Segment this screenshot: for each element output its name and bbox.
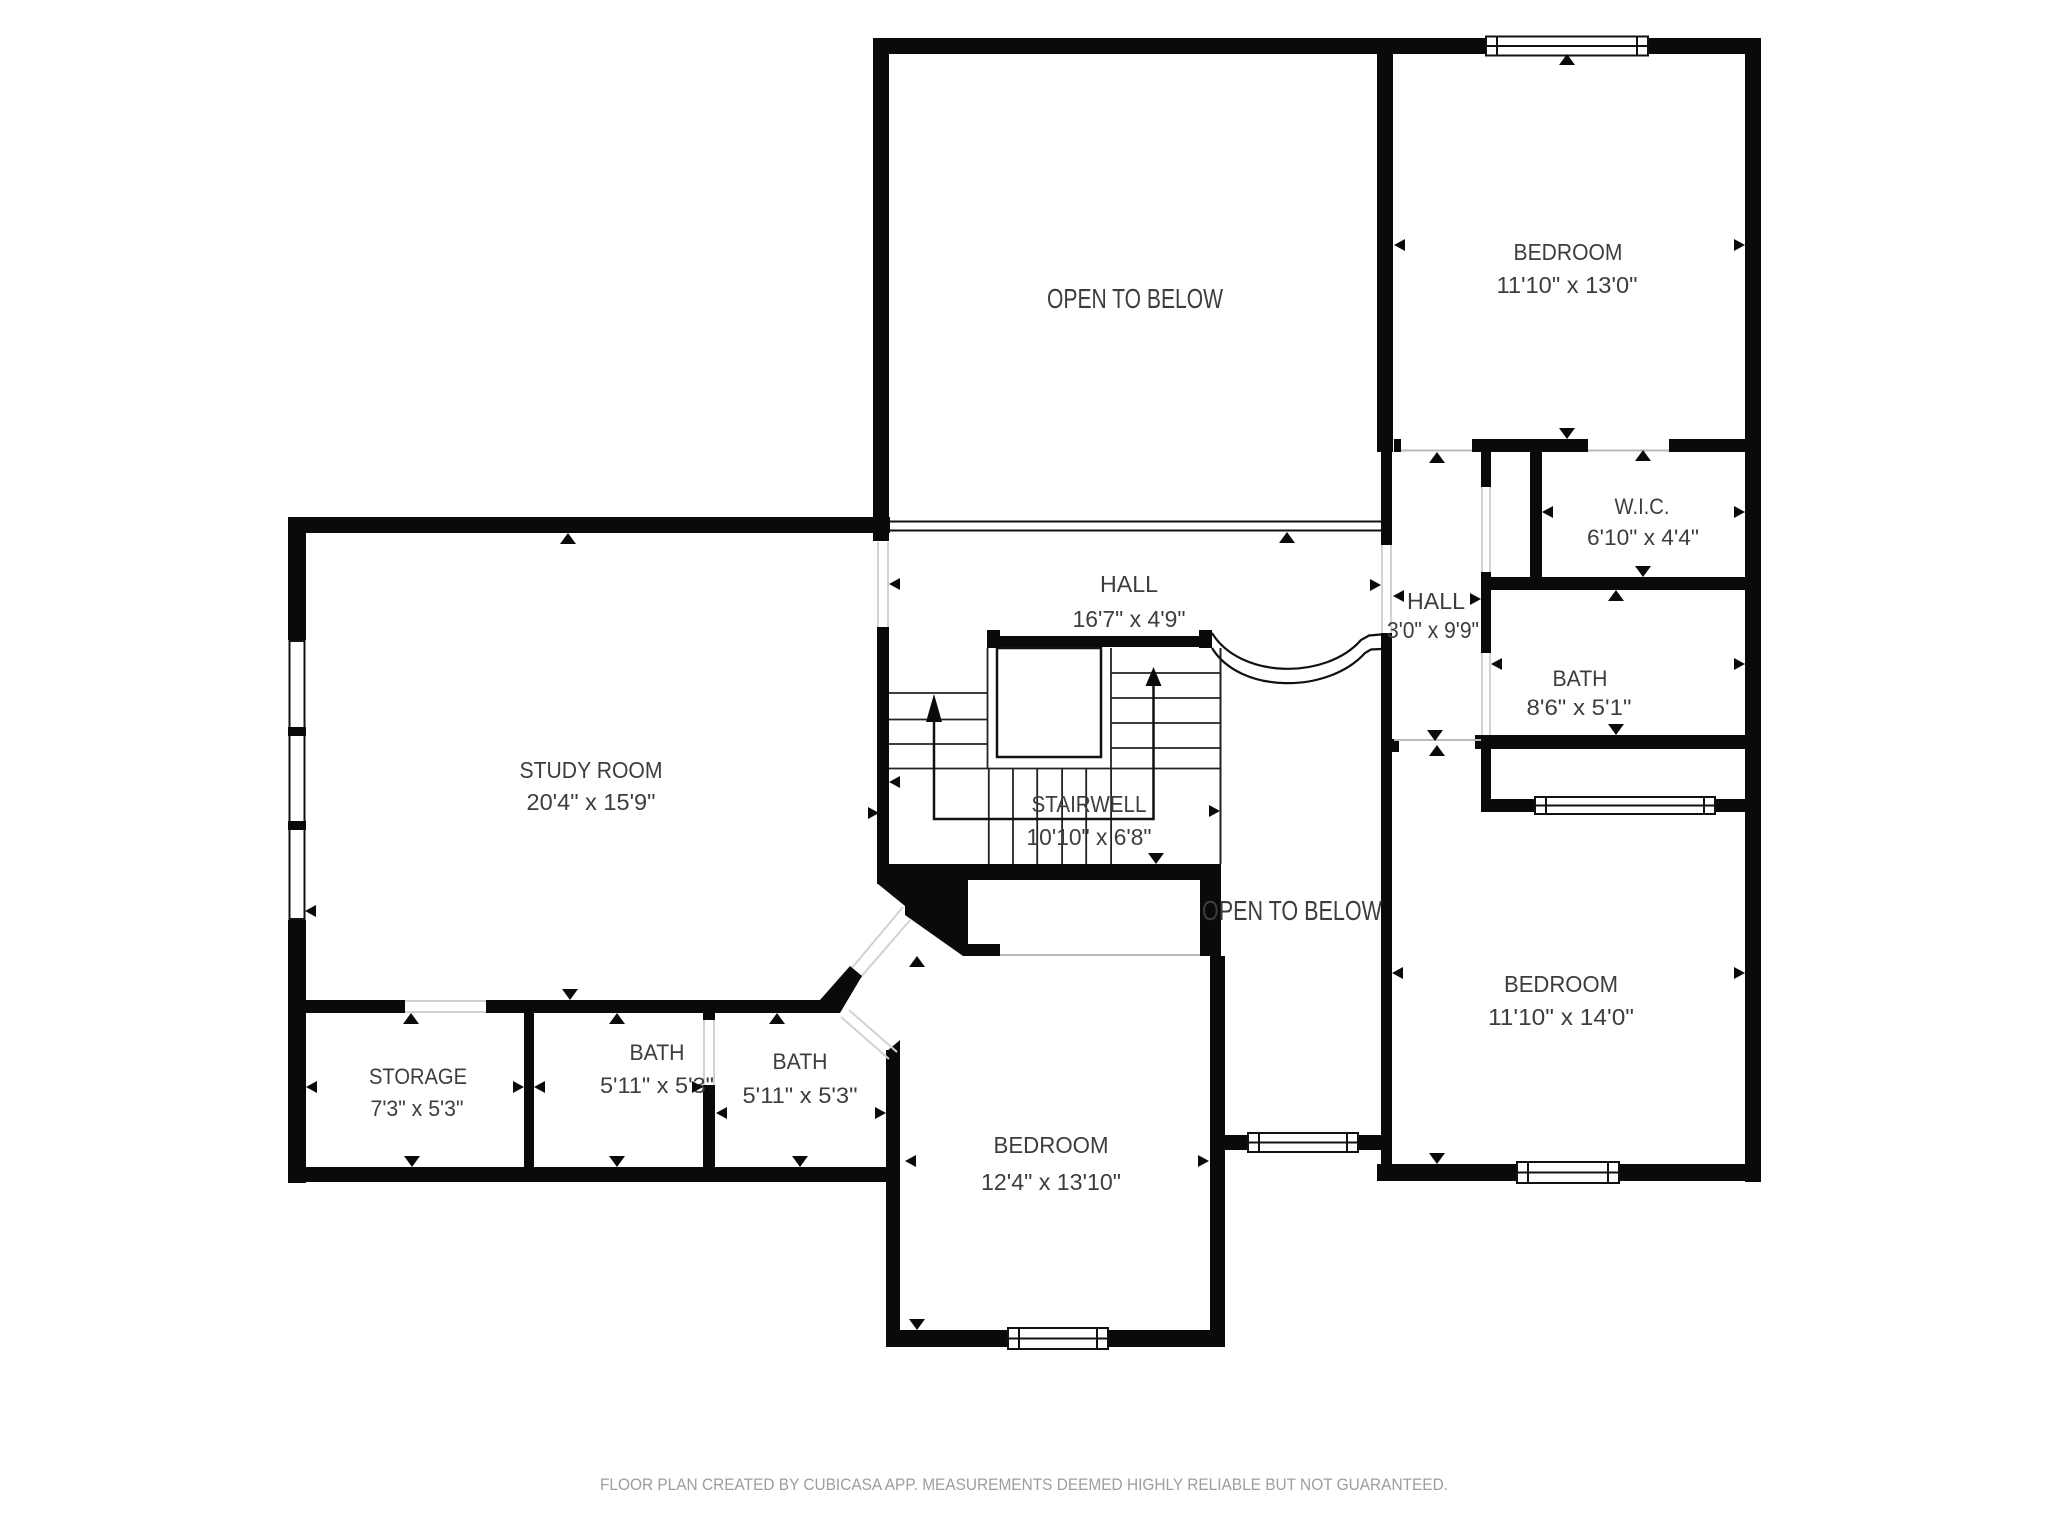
svg-text:11'10" x 13'0": 11'10" x 13'0"	[1497, 272, 1638, 298]
svg-text:BATH: BATH	[1553, 666, 1608, 691]
svg-text:12'4" x 13'10": 12'4" x 13'10"	[981, 1169, 1121, 1195]
svg-text:W.I.C.: W.I.C.	[1615, 494, 1670, 519]
svg-text:STUDY ROOM: STUDY ROOM	[520, 757, 663, 783]
svg-text:16'7" x 4'9": 16'7" x 4'9"	[1073, 606, 1186, 632]
svg-text:BATH: BATH	[630, 1040, 685, 1065]
svg-text:BATH: BATH	[773, 1049, 828, 1074]
svg-text:3'0" x 9'9": 3'0" x 9'9"	[1387, 617, 1479, 643]
svg-text:STORAGE: STORAGE	[369, 1064, 467, 1089]
svg-text:BEDROOM: BEDROOM	[994, 1132, 1109, 1158]
svg-text:6'10" x 4'4": 6'10" x 4'4"	[1587, 525, 1699, 550]
svg-text:OPEN TO BELOW: OPEN TO BELOW	[1047, 283, 1223, 314]
svg-text:BEDROOM: BEDROOM	[1504, 971, 1618, 997]
svg-text:11'10" x 14'0": 11'10" x 14'0"	[1488, 1004, 1634, 1030]
svg-text:10'10" x 6'8": 10'10" x 6'8"	[1027, 824, 1152, 850]
svg-text:5'11" x 5'3": 5'11" x 5'3"	[743, 1083, 858, 1108]
svg-text:HALL: HALL	[1100, 571, 1158, 597]
svg-text:20'4" x 15'9": 20'4" x 15'9"	[527, 789, 656, 815]
svg-text:8'6" x 5'1": 8'6" x 5'1"	[1527, 695, 1632, 720]
svg-text:FLOOR PLAN CREATED BY CUBICASA: FLOOR PLAN CREATED BY CUBICASA APP. MEAS…	[600, 1475, 1448, 1494]
svg-text:7'3" x 5'3": 7'3" x 5'3"	[371, 1096, 464, 1121]
svg-text:OPEN TO BELOW: OPEN TO BELOW	[1202, 895, 1382, 926]
svg-text:HALL: HALL	[1407, 588, 1465, 614]
svg-text:STAIRWELL: STAIRWELL	[1032, 791, 1147, 817]
svg-text:BEDROOM: BEDROOM	[1514, 239, 1623, 265]
